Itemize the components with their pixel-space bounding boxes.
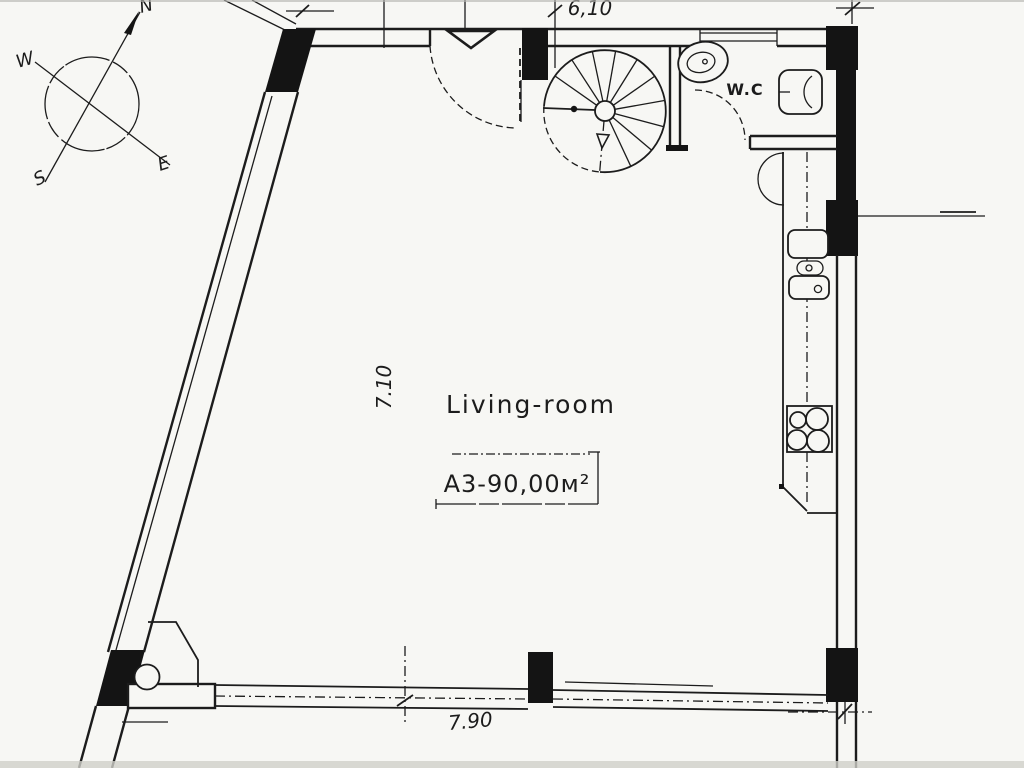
compass-circle — [45, 57, 139, 151]
bottom-window-bottom — [553, 707, 828, 711]
dim-label-bottom: 7.90 — [447, 707, 493, 735]
left-wall-inner — [144, 92, 298, 652]
stair-tread — [555, 76, 597, 105]
compass-north-arrow-icon — [124, 11, 139, 35]
door-threshold-triangle-icon — [448, 31, 494, 48]
counter-curve — [758, 153, 784, 205]
area-label: A3-90,00м² — [444, 470, 591, 498]
scan-edge-top — [0, 0, 1024, 2]
wc-divider-foot — [666, 145, 688, 151]
sink-bowl-top — [788, 230, 828, 258]
fireplace-duct — [135, 622, 199, 690]
dim-label-top: 6,10 — [568, 0, 613, 20]
stair-tread — [609, 120, 631, 166]
bottom-window-extra-line — [565, 682, 713, 686]
scan-edge-bottom — [0, 761, 1024, 768]
site-boundary-line — [224, 0, 289, 32]
room-name-label: Living-room — [446, 390, 616, 419]
stove-icon — [787, 406, 832, 452]
left-wall-outer — [108, 92, 265, 652]
column-mid-right — [826, 200, 858, 256]
bottom-window-mid — [553, 699, 828, 703]
floor-plan-drawing: N W S E — [0, 0, 1024, 768]
stair-direction-arrow-icon — [597, 134, 609, 148]
column-bottom-right — [826, 648, 858, 702]
compass-north-south-line — [45, 12, 140, 182]
stair-landing-line — [543, 108, 595, 110]
bottom-window-mid — [215, 696, 528, 699]
column-bottom-mid — [528, 652, 553, 703]
stair-center-post — [595, 101, 615, 121]
stair-tread — [607, 51, 616, 101]
dim-label-depth: 7.10 — [372, 365, 396, 410]
compass-north-label: N — [137, 0, 155, 18]
left-wall-continuation — [112, 706, 129, 768]
area-label-box: A3-90,00м² — [436, 452, 600, 509]
door-swing-arc — [430, 46, 516, 128]
column-entrance — [522, 28, 548, 80]
entrance-door — [430, 31, 520, 128]
stair-tread — [610, 59, 637, 102]
left-wall-continuation — [79, 706, 96, 768]
counter-corner-dot — [779, 484, 784, 489]
left-wall-glazing — [116, 96, 272, 650]
stair-tread — [615, 100, 665, 109]
site-boundary-line — [252, 0, 296, 24]
compass-rose-icon: N W S E — [14, 0, 173, 191]
counter-chamfer — [783, 487, 807, 511]
plan-labels: 6,10 7.10 7.90 Living-room W.C A3-90,00м… — [372, 0, 764, 735]
kitchen-sink-icon — [788, 230, 829, 299]
compass-west-label: W — [14, 47, 38, 72]
stair-tread — [613, 76, 655, 105]
floor-plan-canvas: N W S E — [0, 0, 1024, 768]
duct-flue-circle — [135, 665, 160, 690]
toilet-fixture-icon — [674, 37, 731, 87]
bottom-window-top — [553, 690, 828, 695]
compass-east-label: E — [155, 152, 173, 176]
dim-tick — [397, 695, 413, 706]
column-top-left — [265, 29, 316, 92]
stair-node-dot — [571, 106, 577, 112]
kitchen-counter — [758, 152, 837, 513]
stair-outer-arc-dashed — [544, 106, 600, 172]
wc-label: W.C — [726, 80, 763, 99]
sink-faucet — [797, 261, 823, 275]
sink-bowl-bottom — [789, 276, 829, 299]
bottom-window-top — [215, 685, 528, 689]
washbasin-fixture-icon — [779, 70, 822, 114]
